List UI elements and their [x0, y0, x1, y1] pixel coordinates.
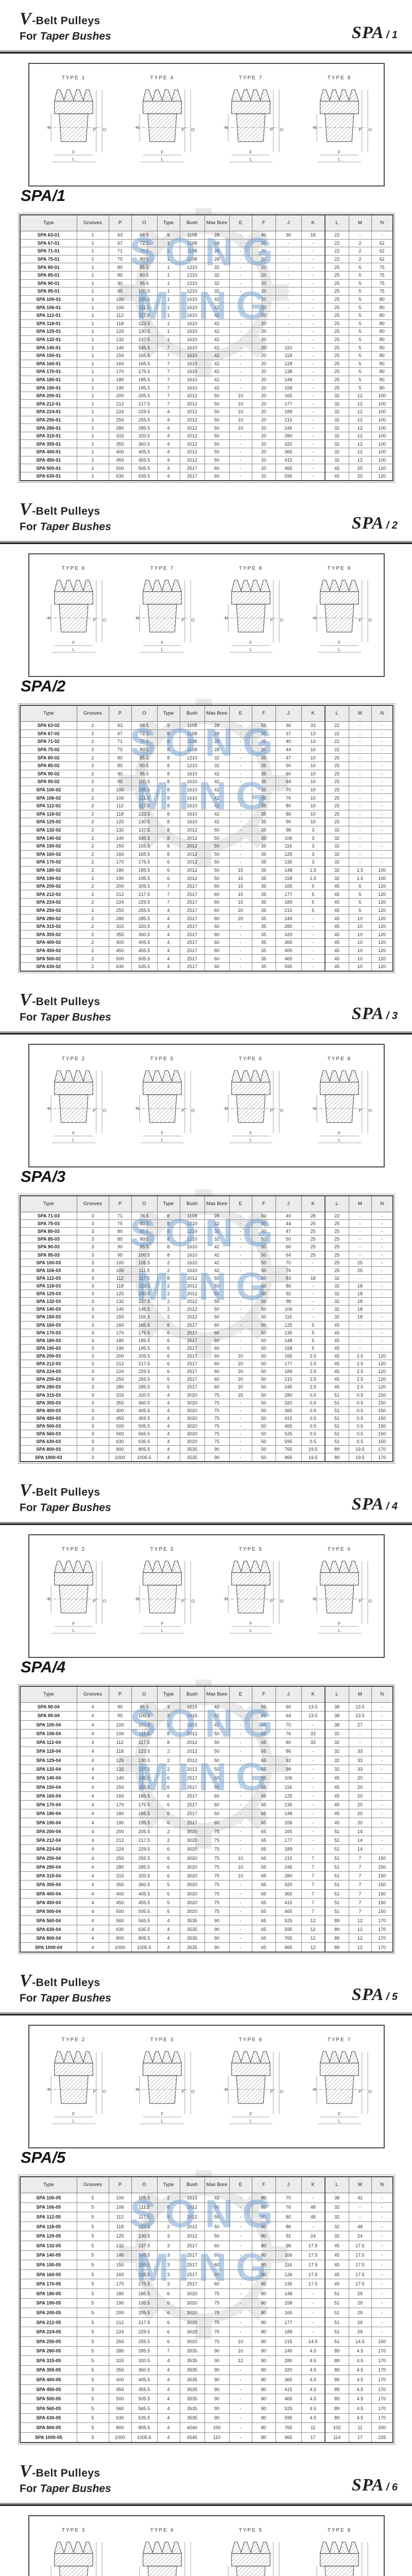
table-cell: 280 [109, 914, 131, 923]
table-cell: SPA 560-03 [20, 1430, 77, 1438]
table-cell: SPA 355-04 [20, 1880, 77, 1889]
table-row: SPA 150-022150155.58201250-35116332-- [20, 842, 393, 850]
table-cell: 90 [204, 2365, 229, 2375]
table-cell: 50 [204, 2212, 229, 2222]
table-cell: 6 [157, 1368, 180, 1376]
table-cell: 465 [276, 2394, 301, 2404]
table-cell: SPA 132-02 [20, 826, 77, 834]
table-cell: 89 [325, 2384, 349, 2394]
table-cell: 5 [349, 287, 371, 296]
table-cell: 1108 [180, 1212, 204, 1220]
table-cell: 5 [77, 2212, 109, 2222]
table-cell: 45 [325, 2260, 349, 2270]
table-cell: - [301, 2193, 325, 2203]
table-cell: SPA 200-05 [20, 2308, 77, 2318]
table-row: SPA 280-011280285.542012501020245-321210… [20, 424, 393, 432]
dim-label-n: N [313, 2087, 316, 2092]
table-cell: 5 [349, 360, 371, 368]
table-cell: 2.5 [349, 1368, 371, 1376]
table-cell: 35 [252, 842, 276, 850]
table-cell: 42 [204, 2193, 229, 2203]
table-cell: 212 [109, 2317, 131, 2327]
table-cell: 6 [157, 2308, 180, 2318]
table-cell: 100 [109, 295, 131, 303]
table-cell: 50 [204, 826, 229, 834]
table-cell: 50 [252, 1274, 276, 1282]
table-cell: 175.5 [131, 2279, 157, 2289]
table-cell: SPA 500-05 [20, 2394, 77, 2404]
table-cell: 12 [349, 440, 371, 448]
table-cell: - [229, 1925, 252, 1934]
table-cell: 3020 [180, 1391, 204, 1399]
table-cell: 50 [252, 1298, 276, 1306]
table-cell: - [229, 842, 252, 850]
table-cell: 13.5 [349, 1703, 371, 1711]
table-cell: 2517 [180, 464, 204, 472]
table-cell: 50 [252, 1453, 276, 1462]
dim-label-f: F [161, 1130, 163, 1136]
pulley-cross-section-icon: N P O F L [38, 572, 110, 661]
table-cell: - [371, 1809, 393, 1818]
table-cell: 4 [77, 1720, 109, 1729]
table-cell: 50 [204, 2202, 229, 2212]
table-cell: 33 [301, 1738, 325, 1747]
table-cell: 60 [204, 930, 229, 939]
table-cell: 45 [325, 1329, 349, 1336]
table-cell: 3535 [180, 2365, 204, 2375]
table-cell: 455.5 [131, 2384, 157, 2394]
table-cell: 158 [276, 1344, 301, 1352]
dim-label-n: N [313, 125, 316, 130]
table-cell: - [371, 1235, 393, 1243]
table-cell: - [229, 448, 252, 456]
table-cell: SPA 100-04 [20, 1720, 77, 1729]
table-cell: 2 [77, 858, 109, 867]
table-cell: 89 [325, 1934, 349, 1942]
table-cell: 117.5 [131, 1738, 157, 1747]
table-cell: SPA 315-02 [20, 922, 77, 930]
table-cell: 120 [371, 955, 393, 963]
table-cell: 92 [276, 1756, 301, 1765]
column-header: Grooves [77, 1686, 109, 1703]
table-cell: 35 [252, 939, 276, 947]
table-cell: 117.5 [131, 1274, 157, 1282]
table-cell: 76 [276, 1729, 301, 1738]
pulley-drawing: TYPE 4 N P O F [122, 75, 203, 171]
table-cell: 3535 [180, 1943, 204, 1952]
table-cell: 45 [325, 946, 349, 955]
table-cell: - [371, 1344, 393, 1352]
page-label-prefix: SPA [352, 23, 384, 42]
table-row: SPA 250-044250255.5630207510652157517150 [20, 1854, 393, 1862]
table-cell: 80 [252, 2365, 276, 2375]
table-cell: 7 [349, 1880, 371, 1889]
table-cell: 4 [157, 2384, 180, 2394]
table-cell: 20 [229, 1352, 252, 1360]
table-cell: 65 [252, 1854, 276, 1862]
table-row: SPA 80-0338085.58121032-50472525-- [20, 1228, 393, 1235]
table-row: SPA 630-022630635.54251760-35595-4510120 [20, 962, 393, 971]
table-cell: SPA 75-03 [20, 1220, 77, 1228]
table-row: SPA 170-022170175.56201250-35135332-- [20, 858, 393, 867]
table-cell: SPA 250-05 [20, 2336, 77, 2346]
table-cell: 3 [301, 858, 325, 867]
table-cell: 65 [252, 1711, 276, 1720]
title-line-1: V-Belt Pulleys [20, 2461, 111, 2483]
table-cell: 3020 [180, 1422, 204, 1430]
table-cell: 42 [204, 328, 229, 336]
table-cell: SPA 224-03 [20, 1368, 77, 1376]
table-cell: 2012 [180, 1313, 204, 1321]
table-cell: 1108 [180, 745, 204, 754]
table-cell: 320.5 [131, 2356, 157, 2366]
table-cell: 10 [229, 392, 252, 400]
table-row: SPA 112-011112117.51161042-20--25580 [20, 311, 393, 319]
table-cell: 1610 [180, 770, 204, 778]
table-row: SPA 106-011106111.51161042-20--25580 [20, 303, 393, 312]
table-row: SPA 224-044224229.56302075-65189-5114- [20, 1845, 393, 1854]
table-cell: SPA 280-03 [20, 1383, 77, 1391]
table-cell: 51 [325, 2298, 349, 2308]
table-cell: SPA 112-04 [20, 1738, 77, 1747]
table-cell: 32 [325, 392, 349, 400]
table-cell: - [301, 1845, 325, 1854]
dim-label-l: L [161, 1137, 164, 1142]
table-cell: - [229, 786, 252, 794]
table-cell: - [349, 1336, 371, 1344]
dim-label-l: L [161, 1628, 164, 1633]
table-cell: - [276, 295, 301, 303]
table-row: SPA 106-044106111.58201250-65763332-- [20, 1729, 393, 1738]
table-cell: - [349, 1251, 371, 1259]
drawing-caption: TYPE 8 [328, 1056, 351, 1062]
table-cell: - [229, 1212, 252, 1220]
table-cell: 224 [109, 408, 131, 416]
table-cell: 2517 [180, 1368, 204, 1376]
column-header: E [229, 2177, 252, 2193]
table-cell: - [371, 1243, 393, 1251]
table-row: SPA 500-011500505.54251760-20465-4525120 [20, 464, 393, 472]
section-title: SPA/5 [21, 2148, 65, 2167]
drawings-panel: TYPE 2 N P O F [28, 1534, 385, 1658]
pulley-drawing: TYPE 3 N P O F [33, 2528, 114, 2576]
table-cell: - [229, 231, 252, 240]
table-cell: 120 [371, 1368, 393, 1376]
table-cell: 20 [252, 432, 276, 440]
table-cell: 7 [157, 392, 180, 400]
table-cell: SPA 450-04 [20, 1898, 77, 1907]
table-row: SPA 180-011180185.57161042-20148-25580 [20, 376, 393, 384]
table-cell: 140 [109, 834, 131, 842]
table-cell: 50 [204, 432, 229, 440]
table-cell: 45 [325, 2279, 349, 2289]
table-cell: - [301, 922, 325, 930]
table-cell: 20 [252, 303, 276, 312]
table-cell: 12 [301, 1943, 325, 1952]
table-cell: 80 [252, 2394, 276, 2404]
table-cell: 4 [77, 1862, 109, 1871]
table-cell: 25 [325, 810, 349, 818]
table-cell: - [301, 1306, 325, 1313]
table-cell: 50 [252, 1352, 276, 1360]
table-cell: 150 [371, 1872, 393, 1880]
table-cell: 250 [109, 2336, 131, 2346]
table-cell: 2 [157, 1259, 180, 1266]
table-cell: 3 [157, 2231, 180, 2241]
table-cell: 224 [109, 1845, 131, 1854]
spec-table: TypeGroovesPOTypeBushMax BoreEFJKLMN SPA… [20, 214, 393, 481]
table-cell: 150 [371, 2336, 393, 2346]
table-cell: 2012 [180, 416, 204, 424]
drawing-caption: TYPE 5 [239, 1547, 263, 1552]
table-cell: 165 [276, 1827, 301, 1836]
table-cell: - [371, 1836, 393, 1844]
table-row: SPA 450-055450455.54353590-804154.5894.5… [20, 2384, 393, 2394]
table-cell: 320.5 [131, 1391, 157, 1399]
table-cell: 75 [204, 1391, 229, 1399]
table-cell: 18 [349, 1290, 371, 1298]
table-cell: 1108 [180, 231, 204, 240]
table-row: SPA 63-0226368.59110828-55363322-- [20, 722, 393, 730]
table-cell: 28 [204, 722, 229, 730]
table-cell: 8 [157, 2212, 180, 2222]
table-cell: 8 [157, 818, 180, 826]
table-cell: 35 [252, 906, 276, 914]
table-cell: SPA 500-04 [20, 1907, 77, 1916]
table-cell: 20 [252, 472, 276, 481]
table-cell: - [371, 1298, 393, 1306]
table-cell: 60 [204, 1783, 229, 1791]
table-cell: 3 [77, 1344, 109, 1352]
dim-label-o: O [368, 1108, 372, 1113]
table-cell: 7 [349, 1854, 371, 1862]
table-cell: 5 [349, 335, 371, 344]
table-cell: 13.5 [349, 1711, 371, 1720]
table-cell: 32 [204, 1220, 229, 1228]
table-cell: 50 [204, 1313, 229, 1321]
table-cell: 2517 [180, 2260, 204, 2270]
table-cell: 20 [252, 368, 276, 376]
table-cell: 190 [109, 1818, 131, 1827]
table-row: SPA 140-044140145.56251760-65106-4520- [20, 1774, 393, 1783]
table-row: SPA 160-022160165.58201250-35125332-- [20, 850, 393, 858]
table-cell: 1 [77, 432, 109, 440]
table-cell: 12 [349, 1943, 371, 1952]
table-cell: 7 [301, 1872, 325, 1880]
table-cell: 95.5 [131, 1243, 157, 1251]
table-cell: - [349, 2202, 371, 2212]
pulley-drawing: TYPE 5 N P O F [122, 1056, 203, 1151]
table-cell: 75 [204, 1414, 229, 1422]
dim-label-p: P [93, 617, 96, 622]
dim-label-p: P [358, 617, 362, 622]
dim-label-o: O [191, 1598, 195, 1603]
pulley-cross-section-icon: N P O F L [303, 82, 375, 171]
table-cell: 2517 [180, 890, 204, 899]
table-cell: 45 [325, 1344, 349, 1352]
table-cell: 17.5 [349, 2279, 371, 2289]
table-cell: - [229, 922, 252, 930]
table-cell: 2517 [180, 1329, 204, 1336]
table-cell: - [229, 335, 252, 344]
table-cell: 1 [77, 456, 109, 464]
table-cell: 60 [204, 2241, 229, 2250]
table-cell: 7 [157, 899, 180, 907]
table-cell: 112 [109, 2212, 131, 2222]
column-header: N [371, 215, 393, 231]
table-cell: 10 [301, 794, 325, 802]
table-cell: - [349, 778, 371, 786]
table-row: SPA 400-022400405.54251760-35365-4510120 [20, 939, 393, 947]
table-cell: - [371, 2193, 393, 2203]
drawing-caption: TYPE 3 [150, 1547, 174, 1552]
table-cell: 95 [109, 1251, 131, 1259]
table-cell: - [349, 842, 371, 850]
table-cell: - [371, 1228, 393, 1235]
table-cell: 4 [157, 1438, 180, 1446]
table-cell: 2012 [180, 1306, 204, 1313]
table-cell: SPA 450-01 [20, 456, 77, 464]
table-cell: 32 [325, 1274, 349, 1282]
table-cell: 500 [109, 464, 131, 472]
table-cell: 120 [371, 890, 393, 899]
drawing-caption: TYPE 7 [328, 2037, 351, 2043]
table-row: SPA 400-033400405.54302075-503650.5510.5… [20, 1406, 393, 1414]
table-cell: 64 [276, 778, 301, 786]
table-cell: 6 [157, 2336, 180, 2346]
table-cell: - [301, 424, 325, 432]
drawing-caption: TYPE 5 [150, 1056, 174, 1062]
table-cell: 160 [109, 1321, 131, 1329]
table-cell: 1 [157, 328, 180, 336]
table-cell: 50 [204, 416, 229, 424]
table-cell: - [301, 2317, 325, 2327]
table-cell: - [371, 2269, 393, 2279]
table-cell: 4 [77, 1943, 109, 1952]
table-cell: - [371, 2241, 393, 2250]
table-cell: 75 [204, 1889, 229, 1898]
table-cell: - [349, 794, 371, 802]
dim-label-n: N [136, 616, 139, 621]
dim-label-l: L [338, 156, 341, 161]
table-cell: 106 [276, 834, 301, 842]
table-cell: 20 [252, 351, 276, 360]
table-cell: 630 [109, 1925, 131, 1934]
table-cell: 42 [204, 368, 229, 376]
table-cell: - [229, 319, 252, 328]
table-cell: - [229, 1220, 252, 1228]
table-cell: 50 [252, 1446, 276, 1453]
table-cell: 25 [325, 754, 349, 762]
table-cell: 118 [109, 2222, 131, 2231]
table-cell: 1 [77, 408, 109, 416]
table-cell: 158 [276, 384, 301, 392]
dim-label-f: F [72, 1621, 75, 1626]
table-cell: 130.5 [131, 1290, 157, 1298]
table-cell: 5 [157, 1907, 180, 1916]
table-row: SPA 212-044212217.52302075-65177-5114- [20, 1836, 393, 1844]
table-cell: SPA 212-04 [20, 1836, 77, 1844]
table-cell: 90 [204, 1934, 229, 1942]
table-cell: SPA 250-02 [20, 906, 77, 914]
table-cell: 3 [77, 1391, 109, 1399]
table-cell: 20 [349, 1783, 371, 1791]
table-cell: 3020 [180, 2336, 204, 2346]
table-cell: 2517 [180, 1360, 204, 1368]
table-cell: 90 [204, 2394, 229, 2404]
table-cell: 20 [349, 1791, 371, 1800]
table-cell: 145.5 [131, 344, 157, 352]
column-header: Type [20, 215, 77, 231]
dim-label-l: L [73, 647, 75, 652]
table-cell: - [229, 464, 252, 472]
table-cell: 17.5 [301, 2260, 325, 2270]
table-cell: 118 [109, 810, 131, 818]
table-cell: 18 [349, 1282, 371, 1290]
table-cell: 415 [276, 1898, 301, 1907]
drawing-caption: TYPE 2 [62, 2037, 85, 2043]
table-cell: 50 [252, 1376, 276, 1383]
table-cell: SPA 150-05 [20, 2260, 77, 2270]
table-cell: SPA 250-04 [20, 1854, 77, 1862]
table-cell: 2 [77, 770, 109, 778]
table-cell: 65 [252, 1791, 276, 1800]
table-cell: 4 [77, 1880, 109, 1889]
table-cell: 217.5 [131, 400, 157, 408]
table-cell: SPA 80-01 [20, 263, 77, 272]
table-cell: - [229, 962, 252, 971]
drawing-caption: TYPE 4 [150, 75, 174, 81]
dim-label-f: F [72, 1130, 75, 1136]
spec-table-body: SPA 63-0226368.59110828-55363322-- SPA 6… [20, 722, 393, 972]
table-cell: 190 [109, 384, 131, 392]
table-cell: 11 [301, 2423, 325, 2433]
table-cell: 10 [301, 802, 325, 810]
table-cell: - [301, 319, 325, 328]
table-cell: - [229, 930, 252, 939]
table-cell: 1610 [180, 818, 204, 826]
table-cell: 4 [77, 1818, 109, 1827]
table-cell: 7 [157, 400, 180, 408]
table-cell: 13.5 [301, 1711, 325, 1720]
table-cell: - [229, 279, 252, 287]
column-header: Grooves [77, 215, 109, 231]
table-cell: 72.5 [131, 730, 157, 738]
table-cell: 2517 [180, 939, 204, 947]
table-cell: 1 [77, 464, 109, 472]
dim-label-p: P [358, 127, 362, 132]
table-cell: SPA 190-03 [20, 1344, 77, 1352]
table-cell: 12 [349, 416, 371, 424]
table-cell: 1.5 [301, 866, 325, 874]
table-cell: 42 [204, 360, 229, 368]
table-cell: 2 [77, 874, 109, 883]
table-cell: 70 [276, 2193, 301, 2203]
table-cell: 150 [109, 1783, 131, 1791]
catalog-page: V-Belt Pulleys For Taper Bushes SPA/ 3 T… [0, 981, 412, 1471]
table-cell: 4 [157, 1943, 180, 1952]
table-cell: SPA 80-03 [20, 1228, 77, 1235]
table-cell: SPA 400-02 [20, 939, 77, 947]
table-cell: - [301, 946, 325, 955]
drawing-caption: TYPE 1 [62, 75, 85, 81]
table-cell: 135 [276, 2279, 301, 2289]
table-cell: 5 [77, 2231, 109, 2241]
dim-label-p: P [181, 617, 184, 622]
table-cell: 80 [252, 2250, 276, 2260]
table-cell: SPA 800-04 [20, 1934, 77, 1942]
catalog-page: V-Belt Pulleys For Taper Bushes SPA/ 6 T… [0, 2452, 412, 2576]
